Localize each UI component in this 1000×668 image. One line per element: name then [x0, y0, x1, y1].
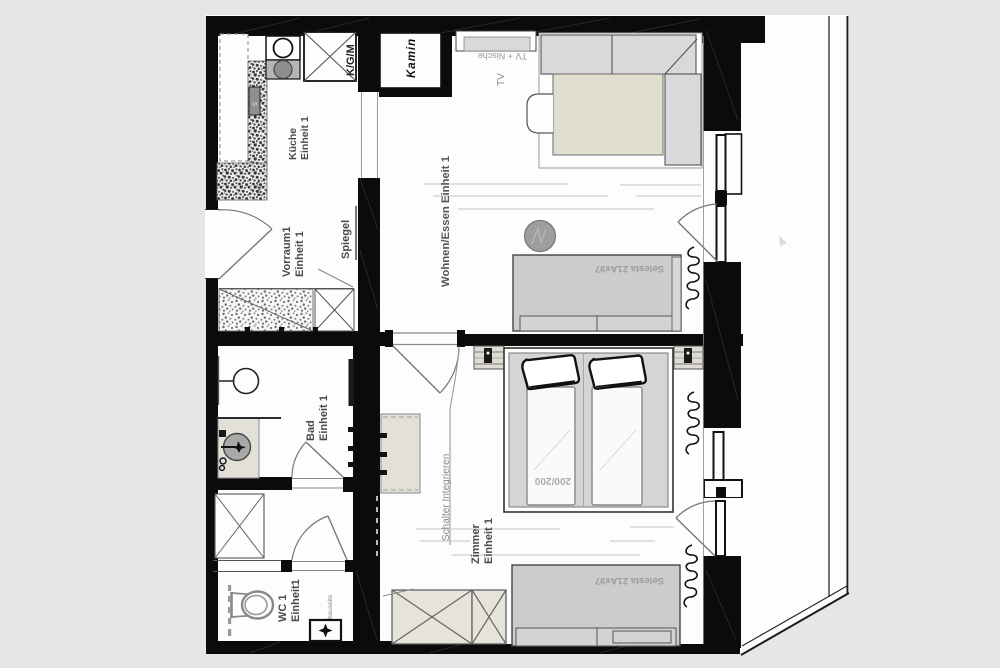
svg-text:TV + Nische: TV + Nische: [478, 51, 527, 61]
svg-text:Schalter Integrieren: Schalter Integrieren: [441, 454, 452, 541]
svg-text:Vorraum1: Vorraum1: [281, 226, 293, 277]
svg-text:WC 1: WC 1: [277, 595, 289, 623]
svg-text:60x60: 60x60: [257, 182, 263, 196]
svg-text:Küche: Küche: [287, 128, 299, 160]
svg-text:Einheit 1: Einheit 1: [483, 518, 495, 564]
svg-text:TV: TV: [496, 73, 507, 86]
svg-text:K/G/M: K/G/M: [345, 44, 357, 76]
svg-text:Einheit 1: Einheit 1: [318, 395, 330, 441]
svg-text:Wohnen/Essen Einheit 1: Wohnen/Essen Einheit 1: [440, 156, 452, 287]
svg-text:Einheit 1: Einheit 1: [299, 116, 311, 160]
svg-text:Kamin .: Kamin .: [406, 29, 418, 78]
svg-text:Bad: Bad: [305, 420, 317, 441]
svg-text:Einheit 1: Einheit 1: [294, 231, 306, 277]
svg-text:Zimmer: Zimmer: [470, 524, 482, 564]
svg-text:200/200: 200/200: [534, 475, 571, 486]
svg-text:Selesta 21Ax97: Selesta 21Ax97: [595, 263, 664, 274]
svg-text:S: S: [253, 102, 259, 106]
svg-text:Einheit1: Einheit1: [290, 579, 302, 622]
svg-text:Spiegel: Spiegel: [340, 220, 352, 259]
svg-text:Selesta 21Ax97: Selesta 21Ax97: [595, 575, 664, 586]
svg-text:bauseits: bauseits: [327, 594, 334, 619]
